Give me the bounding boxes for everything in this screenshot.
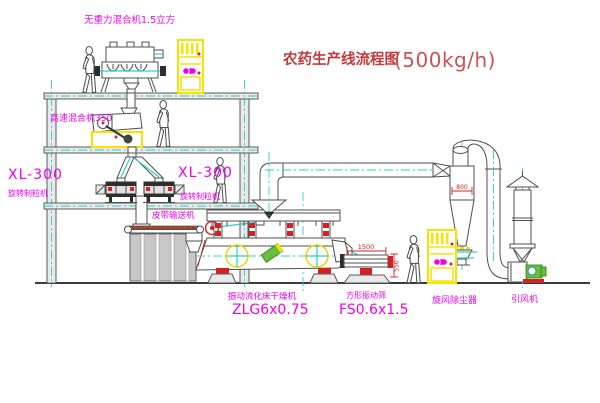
dryer-foot-left	[208, 274, 236, 283]
label-granulator-model-left: XL-300	[8, 167, 63, 183]
worker-floor2	[157, 101, 170, 147]
label-high-speed-mixer: 高速混合机350	[50, 112, 112, 124]
worker-ground	[407, 236, 420, 283]
exhaust-duct	[252, 152, 460, 219]
label-dryer-name: 振动流化床干燥机	[228, 291, 297, 302]
spring-mounts	[214, 221, 330, 238]
mixer-transfer-pipe	[127, 92, 135, 110]
screen-length-dimension: 1500	[347, 243, 386, 255]
process-flow-diagram: 800	[0, 0, 600, 403]
screen-deck	[344, 255, 388, 267]
vibrating-screen: 1500 550	[332, 240, 401, 283]
dryer-foot-right	[310, 274, 338, 283]
dryer-top-cover	[207, 210, 340, 221]
page-title: 农药生产线流程图	[282, 50, 399, 68]
fan-base	[523, 279, 544, 283]
screen-base	[344, 275, 390, 283]
tail-pulley-icon	[125, 226, 132, 233]
label-cyclone: 旋风除尘器	[432, 294, 477, 306]
control-cabinet-roof	[178, 40, 203, 93]
fan-impeller-icon	[528, 267, 536, 275]
label-screen-model: FS0.6x1.5	[339, 302, 409, 318]
label-dryer-model: ZLG6x0.75	[232, 302, 309, 318]
screen-length-label: 1500	[358, 243, 375, 251]
stack-pipe	[514, 190, 531, 244]
label-granulator-name-right: 旋转制粒机	[180, 191, 220, 201]
label-fan: 引风机	[511, 293, 538, 305]
indicator-light-icon	[198, 53, 201, 56]
granulator-right	[143, 178, 184, 203]
motor-icon	[124, 135, 133, 144]
control-cabinet-ground	[428, 230, 456, 283]
head-pulley-icon	[197, 226, 204, 233]
indicator-light-icon	[451, 243, 454, 246]
granulator-left	[96, 178, 137, 203]
label-gravity-free-mixer: 无重力混合机1.5立方	[84, 14, 175, 26]
rain-cap-icon	[507, 176, 538, 187]
screen-height-label: 550	[394, 260, 401, 272]
screen-motor-icon	[360, 268, 372, 275]
induced-draft-fan	[523, 265, 546, 283]
cad-drawing-canvas: 800	[0, 0, 600, 403]
cyclone-body	[450, 166, 474, 200]
label-granulator-name-left: 旋转制粒机	[8, 188, 48, 198]
label-belt-conveyor: 皮带输送机	[152, 210, 195, 221]
title-capacity: (500kg/h)	[394, 48, 496, 72]
y-splitter-chute	[117, 152, 163, 178]
label-screen-name: 方形振动筛	[346, 290, 386, 300]
cyclone-dim-label: 800	[456, 184, 468, 191]
worker-roof	[83, 47, 96, 93]
gravity-free-mixer	[94, 42, 166, 93]
label-granulator-model-right: XL-300	[178, 165, 233, 181]
